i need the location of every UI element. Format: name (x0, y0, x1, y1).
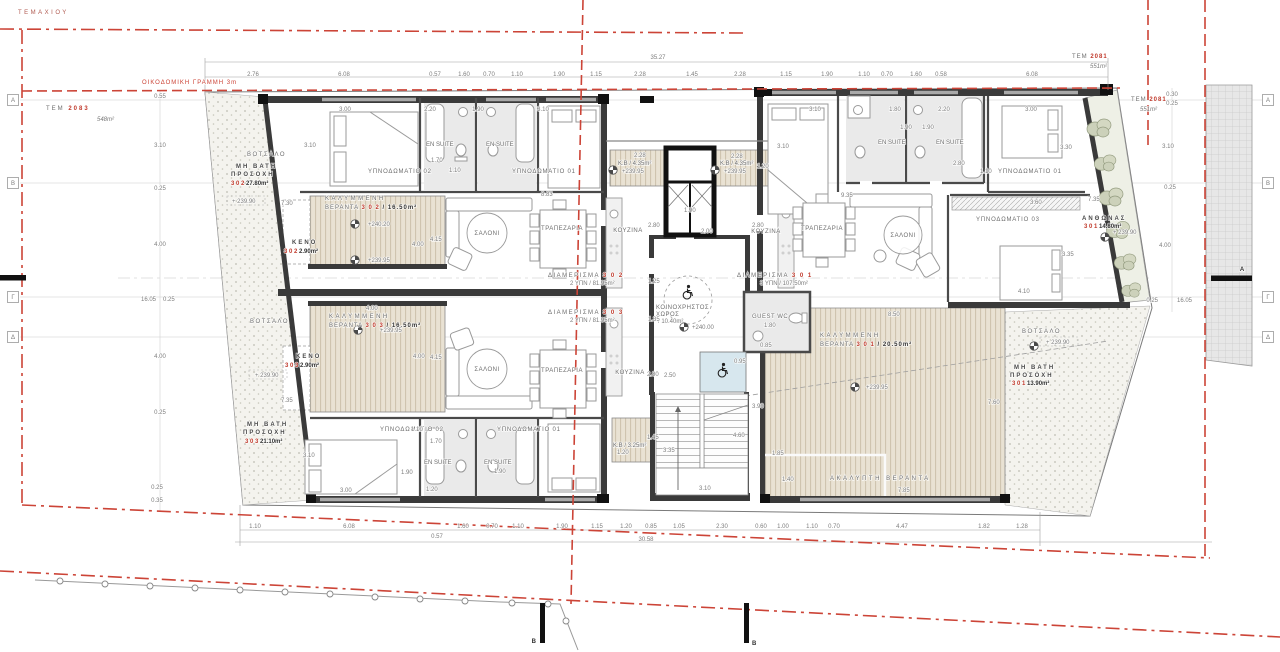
plan-text: 0.70 (828, 524, 840, 530)
level-marker-icon (351, 256, 359, 264)
plan-text: 1.20 (617, 450, 629, 456)
plan-text: 1.85 (772, 451, 784, 457)
plan-text: 3.00 (339, 107, 351, 113)
plan-text: 0.25 (154, 410, 166, 416)
plan-text: 3.10 (1162, 144, 1174, 150)
plan-text: 2.28 (634, 153, 646, 159)
plan-text: 8.83 (541, 192, 553, 198)
plan-text: +239.95 (724, 169, 747, 175)
plan-text: ΜΗ ΒΑΤΗ (236, 164, 277, 170)
plan-text: 3.10 (777, 144, 789, 150)
plan-text: 4.47 (896, 524, 908, 530)
room-bedroom02: ΥΠΝΟΔΩΜΑΤΙΟ 02 (368, 169, 432, 175)
plot-2083-area: 548m² (97, 117, 115, 123)
common-space-label: ΚΟΙΝΟΧΡΗΣΤΟΣ (656, 305, 709, 311)
plan-text: 0.57 (431, 534, 443, 540)
plan-text: 1.10 (449, 168, 461, 174)
plan-text: 1.00 (777, 524, 789, 530)
level-marker-icon (351, 220, 359, 228)
floor-plan-drawing: ΑΒΓΔΑΒΓΔ ΤΕΜΑΧΙΟΥΟΙΚΟΔΟΜΙΚΗ ΓΡΑΜΜΗ 3mΤΕΜ… (0, 0, 1280, 652)
plot-2081-label-2: ΤΕΜ 2081 (1131, 97, 1167, 103)
plan-text: 3 0 2 2.90m² (284, 248, 318, 255)
road-strip (1206, 85, 1252, 366)
section-b-label-2: B (752, 641, 757, 647)
plan-text: 2 ΥΠΝ / 81.95m² (570, 281, 615, 287)
wardrobe (952, 197, 1080, 210)
pebble-label: ΒΟΤΣΑΛΟ (247, 152, 286, 158)
plan-text: 2.80 (648, 223, 660, 229)
plan-text: 1.70 (431, 158, 443, 164)
plan-text: 4.00 (412, 242, 424, 248)
plan-text: ΤΡΑΠΕΖΑΡΙΑ (541, 368, 583, 374)
plan-text: 0.70 (486, 524, 498, 530)
plan-text: 8.50 (888, 312, 900, 318)
plan-text: 0.60 (755, 524, 767, 530)
apartment-301-label: ΔΙΑΜΕΡΙΣΜΑ 3 0 1 (737, 273, 813, 279)
plan-text: ΠΡΟΣΟΧΗ (1010, 373, 1054, 379)
plan-text: / 10.40m² (658, 319, 683, 325)
plan-text: ΒΕΡΑΝΤΑ 3 0 3 / 16.50m² (329, 322, 421, 329)
plan-text: 3.90 (752, 404, 764, 410)
plan-text: + 239.90 (232, 199, 256, 205)
plan-text: + 239.90 (255, 373, 279, 379)
plan-text: 0.85 (645, 524, 657, 530)
plan-text: 1.90 (922, 125, 934, 131)
plan-text: ΚΑΛΥΜΜΕΝΗ (329, 314, 390, 320)
plan-text: 1.90 (401, 470, 413, 476)
plan-text: + 239.90 (1113, 230, 1137, 236)
building-line-label: ΟΙΚΟΔΟΜΙΚΗ ΓΡΑΜΜΗ 3m (142, 80, 237, 86)
plan-text: ΠΡΟΣΟΧΗ (231, 172, 275, 178)
guest-wc-label: GUEST WC (752, 314, 788, 320)
plan-text: Κ.Β / 3.25m² (613, 443, 646, 449)
plan-text: EN SUITE (426, 142, 454, 148)
plan-text: ΒΟΤΣΑΛΟ (250, 319, 289, 325)
level-marker-icon (609, 166, 617, 174)
plan-text: EN SUITE (878, 140, 906, 146)
plan-text: 2.28 (731, 154, 743, 160)
plan-text: 0.25 (1164, 185, 1176, 191)
plot-2081-area: 551m² (1090, 64, 1108, 70)
plan-text: 0.55 (154, 94, 166, 100)
plot-2083-label: ΤΕΜ 2083 (46, 106, 90, 112)
planter-label: ΑΝΘΩΝΑΣ (1082, 216, 1126, 222)
plan-text: ΥΠΝΟΔΩΜΑΤΙΟ 01 (998, 169, 1062, 175)
plan-text: 7.60 (988, 400, 1000, 406)
elevator-shaft (666, 148, 714, 235)
plan-text: 6.08 (343, 524, 355, 530)
pebble-strip-right (1005, 306, 1150, 516)
plan-text: 2.76 (247, 72, 259, 78)
plan-text: 0.25 (1166, 101, 1178, 107)
plan-text: 1.10 (411, 427, 423, 433)
plan-text: 4.15 (430, 237, 442, 243)
plan-text: 4.00 (154, 354, 166, 360)
veranda-303 (310, 304, 445, 412)
plan-text: 0.25 (163, 297, 175, 303)
apartment-302-label: ΔΙΑΜΕΡΙΣΜΑ 3 0 2 (548, 273, 624, 279)
section-b-bar-2 (744, 603, 749, 643)
plan-text: 3.10 (809, 107, 821, 113)
plan-text: EN SUITE (936, 140, 964, 146)
plan-text: 1.10 (806, 524, 818, 530)
plan-text: 0.57 (429, 72, 441, 78)
plan-text: 0.25 (151, 485, 163, 491)
plan-text: 3 ΥΠΝ / 107.50m² (760, 281, 808, 287)
plan-text: 1.60 (457, 524, 469, 530)
plan-text: 1.60 (910, 72, 922, 78)
plan-text: 3.00 (340, 488, 352, 494)
plan-text: ΣΑΛΟΝΙ (474, 367, 499, 373)
plan-text: 0.85 (760, 343, 772, 349)
plan-text: ΒΕΡΑΝΤΑ 3 0 2 / 16.50m² (325, 204, 417, 211)
plan-text: 1.20 (426, 487, 438, 493)
plan-text: 1.15 (591, 524, 603, 530)
grid-marker-label: Α (1266, 98, 1270, 104)
plan-text: 2.28 (634, 72, 646, 78)
plan-text: 4.10 (1018, 289, 1030, 295)
plan-text: ΤΡΑΠΕΖΑΡΙΑ (801, 226, 843, 232)
plot-2081-area-2: 551m² (1140, 107, 1158, 113)
plan-text: 1.25 (648, 279, 660, 285)
plan-text: 1.20 (757, 164, 769, 170)
plan-text: 3.10 (154, 143, 166, 149)
section-a-bar-left (0, 275, 26, 281)
plan-text: ΚΕΝΟ (292, 240, 317, 246)
level-marker-icon (851, 383, 859, 391)
plan-text: 2.80 (752, 223, 764, 229)
plan-text: +239.95 (368, 258, 391, 264)
grid-marker-label: Β (1266, 181, 1270, 187)
plan-text: 1.05 (673, 524, 685, 530)
plan-text: Κ.Β / 4.35m² (618, 161, 651, 167)
plan-text: 1.80 (889, 107, 901, 113)
plan-text: 0.30 (1166, 92, 1178, 98)
plan-text: 4.60 (733, 433, 745, 439)
plan-text: 2.80 (647, 372, 659, 378)
room-dining: ΤΡΑΠΕΖΑΡΙΑ (541, 226, 583, 232)
plan-text: 0.58 (935, 72, 947, 78)
overall-dim-bottom: 30.58 (638, 537, 654, 543)
plan-text: ΚΕΝΟ (296, 354, 321, 360)
plan-text: ΜΗ ΒΑΤΗ (1014, 365, 1055, 371)
plan-text: 1.20 (620, 524, 632, 530)
level-marker-icon (1101, 233, 1109, 241)
level-marker-icon (711, 166, 719, 174)
plan-text: 6.08 (1026, 72, 1038, 78)
plan-text: 2.28 (734, 72, 746, 78)
plan-text: 0.70 (483, 72, 495, 78)
grid-marker-label: Δ (11, 335, 15, 341)
plan-text: 3 0 1 14.80m² (1084, 223, 1121, 230)
plan-text: ΚΑΛΥΜΜΕΝΗ (820, 333, 881, 339)
plan-text: 2.50 (664, 373, 676, 379)
plan-text: 3.35 (1062, 252, 1074, 258)
room-bedroom01: ΥΠΝΟΔΩΜΑΤΙΟ 01 (512, 169, 576, 175)
plan-text: ΥΠΝΟΔΩΜΑΤΙΟ 01 (497, 427, 561, 433)
plan-text: 1.15 (780, 72, 792, 78)
section-a-bar-right (1211, 276, 1252, 282)
plan-text: 3.35 (663, 448, 675, 454)
plan-text: 1.80 (764, 323, 776, 329)
plan-text: 1.90 (553, 72, 565, 78)
plan-text: 1.10 (980, 169, 992, 175)
section-a-label: A (1240, 267, 1245, 273)
plan-text: 3 0 3 2.90m² (285, 362, 319, 369)
plan-text: 3.10 (304, 143, 316, 149)
plan-text: 1.90 (472, 107, 484, 113)
plan-text: 1.10 (512, 524, 524, 530)
plan-text: 7.85 (898, 488, 910, 494)
room-living: ΣΑΛΟΝΙ (474, 231, 499, 237)
plan-text: 3.10 (537, 107, 549, 113)
plan-text: 1.10 (858, 72, 870, 78)
plan-text: 4.00 (366, 306, 378, 312)
plan-text: 3 0 1 13.90m² (1012, 380, 1049, 387)
plan-text: 6.08 (338, 72, 350, 78)
plan-text: EN SUITE (424, 460, 452, 466)
plan-text: 2.20 (938, 107, 950, 113)
plan-text: 1.90 (684, 208, 696, 214)
plan-text: 3 0 3 21.10m² (245, 438, 282, 445)
plan-text: ΥΠΝΟΔΩΜΑΤΙΟ 03 (976, 217, 1040, 223)
plan-text: 1.82 (978, 524, 990, 530)
plan-text: 7.30 (281, 201, 293, 207)
parcel-boundary-top (0, 29, 745, 33)
plan-text: 3 0 2 27.80m² (231, 180, 268, 187)
parcel-label: ΤΕΜΑΧΙΟΥ (18, 10, 69, 16)
plan-text: 3.60 (1030, 200, 1042, 206)
plan-text: 3.10 (699, 486, 711, 492)
plan-text: 1.35 (648, 317, 660, 323)
uncovered-veranda-label: ΑΚΑΛΥΠΤΗ ΒΕΡΑΝΤΑ (830, 476, 931, 482)
plan-text: ΒΕΡΑΝΤΑ 3 0 1 / 20.50m² (820, 341, 912, 348)
fence-line (35, 578, 578, 650)
parcel-boundary-bottom (22, 505, 1210, 558)
floor-plan-page: ΑΒΓΔΑΒΓΔ ΤΕΜΑΧΙΟΥΟΙΚΟΔΟΜΙΚΗ ΓΡΑΜΜΗ 3mΤΕΜ… (0, 0, 1280, 652)
grid-marker-label: Β (11, 181, 15, 187)
plan-text: 1.90 (900, 125, 912, 131)
plan-text: 1.10 (511, 72, 523, 78)
grid-marker-label: Δ (1266, 335, 1270, 341)
apartment-303-label: ΔΙΑΜΕΡΙΣΜΑ 3 0 3 (548, 310, 624, 316)
accessible-lobby (700, 352, 746, 392)
section-b-bar-1 (540, 603, 545, 643)
grid-marker-label: Α (11, 98, 15, 104)
plan-text: 1.70 (430, 439, 442, 445)
plan-text: 7.35 (1088, 197, 1100, 203)
plan-text: +239.95 (622, 169, 645, 175)
room-kitchen: ΚΟΥΖΙΝΑ (613, 228, 642, 234)
plan-text: 1.90 (494, 469, 506, 475)
plan-text: 1.15 (590, 72, 602, 78)
level-marker-icon (1030, 342, 1038, 350)
plan-text: 3.00 (1025, 107, 1037, 113)
plan-text: 4.00 (154, 242, 166, 248)
plan-text: ΒΟΤΣΑΛΟ (1022, 329, 1061, 335)
plan-text: 16.05 (1177, 298, 1193, 304)
plan-text: EN SUITE (486, 142, 514, 148)
plan-text: +239.95 (380, 328, 403, 334)
plan-text: 3.10 (303, 453, 315, 459)
plan-text: 1.90 (556, 524, 568, 530)
plan-text: 1.60 (458, 72, 470, 78)
plan-text: 1.45 (686, 72, 698, 78)
plan-text: 2.20 (424, 107, 436, 113)
plan-text: 4.00 (1159, 243, 1171, 249)
plan-text: +240.00 (692, 325, 715, 331)
plan-text: 1.45 (647, 435, 659, 441)
plan-text: 1.90 (821, 72, 833, 78)
plan-text: 0.70 (881, 72, 893, 78)
plan-text: 1.28 (1016, 524, 1028, 530)
plan-text: 2.00 (701, 229, 713, 235)
plan-text: 9.35 (841, 193, 853, 199)
plan-text: 3.30 (1060, 145, 1072, 151)
plan-text: 16.05 (141, 297, 157, 303)
plan-text: ΜΗ ΒΑΤΗ (247, 422, 288, 428)
plan-text: +239.95 (866, 385, 889, 391)
plan-text: ΚΟΥΖΙΝΑ (615, 370, 644, 376)
plan-text: 2.30 (716, 524, 728, 530)
plan-text: + 239.90 (1046, 340, 1070, 346)
overall-dim-top: 35.27 (650, 55, 666, 61)
plan-text: ΚΟΥΖΙΝΑ (751, 229, 780, 235)
plot-2081-label: ΤΕΜ 2081 (1072, 54, 1108, 60)
parcel-boundary-lower (0, 571, 1280, 637)
plan-text: 4.15 (430, 355, 442, 361)
plan-text: +240.20 (368, 222, 391, 228)
plan-text: 0.95 (734, 359, 746, 365)
plan-text: 7.35 (281, 398, 293, 404)
plan-text: 1.10 (249, 524, 261, 530)
plan-text: 0.25 (1146, 298, 1158, 304)
plan-text: 2.80 (953, 161, 965, 167)
plan-text: ΣΑΛΟΝΙ (890, 233, 915, 239)
plan-text: EN SUITE (484, 460, 512, 466)
plan-text: 4.00 (413, 354, 425, 360)
plan-text: ΠΡΟΣΟΧΗ (243, 430, 287, 436)
section-b-label: B (532, 639, 537, 645)
plan-text: 0.35 (151, 498, 163, 504)
plan-text: 0.25 (154, 186, 166, 192)
plan-text: ΚΑΛΥΜΜΕΝΗ (325, 196, 386, 202)
plan-text: 1.40 (782, 477, 794, 483)
plan-text: Κ.Β / 4.35m² (720, 161, 753, 167)
plan-text: 2 ΥΠΝ / 81.95m² (570, 318, 615, 324)
staircase (656, 394, 748, 495)
